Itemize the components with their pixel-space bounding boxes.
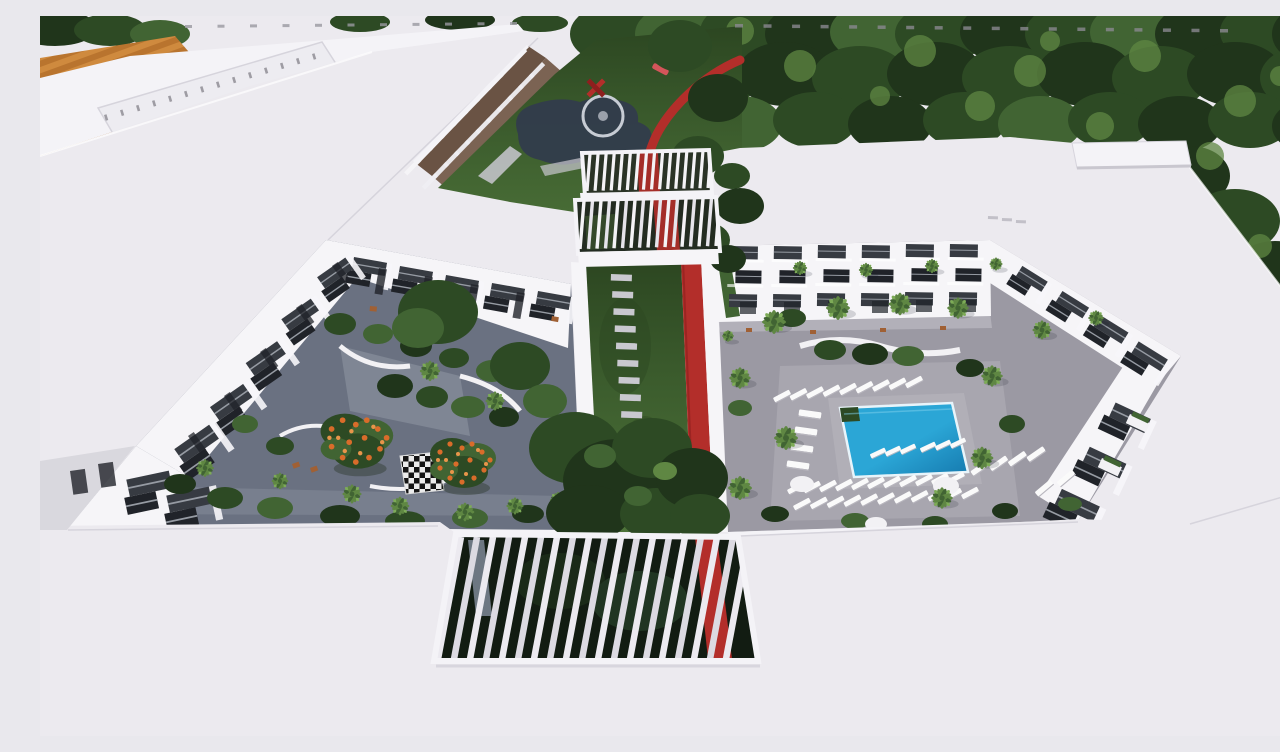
bush bbox=[439, 348, 469, 368]
tick bbox=[792, 25, 800, 29]
tree-blob bbox=[716, 188, 764, 224]
stepping-stone bbox=[616, 343, 637, 350]
palm-tree bbox=[762, 310, 786, 334]
palm-tree bbox=[1032, 320, 1051, 339]
tick bbox=[413, 23, 420, 26]
tree-highlight bbox=[870, 86, 890, 106]
tree-blob bbox=[584, 444, 616, 468]
tick bbox=[1163, 28, 1171, 32]
bush bbox=[207, 487, 243, 509]
shrub bbox=[1058, 497, 1082, 511]
playground-ring-center bbox=[598, 111, 608, 121]
tree-highlight bbox=[904, 35, 936, 67]
tick bbox=[1134, 28, 1142, 32]
tree-blob bbox=[624, 486, 652, 506]
tree-blob bbox=[670, 494, 730, 538]
rooftop-structure bbox=[1072, 141, 1191, 168]
tree-highlight bbox=[1224, 85, 1256, 117]
door bbox=[916, 300, 932, 312]
bush bbox=[266, 437, 294, 455]
palm-tree bbox=[859, 263, 873, 277]
shrub bbox=[728, 400, 752, 416]
stepping-stone bbox=[618, 377, 639, 384]
tick bbox=[1191, 29, 1199, 33]
chair bbox=[746, 328, 752, 332]
roof-mark bbox=[1002, 218, 1012, 221]
tree-highlight bbox=[965, 91, 995, 121]
tree-blob bbox=[490, 342, 550, 390]
palm-tree bbox=[826, 296, 850, 320]
tree-blob bbox=[392, 308, 444, 348]
chair bbox=[880, 328, 886, 332]
pool-corner-planter bbox=[840, 407, 860, 422]
palm-tree bbox=[272, 473, 289, 490]
palm-tree bbox=[420, 361, 440, 381]
chair bbox=[370, 306, 377, 312]
stepping-stone bbox=[617, 360, 638, 367]
tick bbox=[1077, 28, 1085, 32]
stepping-stone bbox=[613, 308, 634, 315]
tick bbox=[1020, 27, 1028, 31]
tick bbox=[764, 24, 772, 28]
tick bbox=[1049, 27, 1057, 31]
door bbox=[740, 302, 756, 314]
roof-mark bbox=[988, 216, 998, 219]
tick bbox=[510, 22, 517, 25]
bush bbox=[324, 313, 356, 335]
roof-mark bbox=[1016, 220, 1026, 223]
tick bbox=[478, 22, 485, 25]
bush bbox=[489, 407, 519, 427]
palm-tree bbox=[342, 484, 361, 503]
tree-highlight bbox=[1040, 31, 1060, 51]
rooftop-structure-shadow bbox=[1077, 166, 1191, 168]
palm-tree bbox=[947, 297, 969, 319]
tick bbox=[735, 24, 743, 28]
palm-tree bbox=[1088, 310, 1104, 326]
tick bbox=[1220, 29, 1228, 33]
palm-tree bbox=[774, 426, 798, 450]
tree-blob bbox=[523, 384, 567, 418]
red-path-under-pergola bbox=[637, 153, 660, 193]
tick bbox=[906, 26, 914, 30]
tick bbox=[992, 27, 1000, 31]
tree-blob bbox=[648, 20, 712, 72]
tree-blob bbox=[688, 74, 748, 122]
palm-tree bbox=[722, 330, 734, 342]
palm-tree bbox=[506, 497, 523, 514]
tick bbox=[1106, 28, 1114, 32]
bush bbox=[363, 324, 393, 344]
tick bbox=[821, 25, 829, 29]
stepping-stone bbox=[615, 325, 636, 332]
upper-pergola bbox=[575, 150, 720, 267]
palm-tree bbox=[485, 391, 504, 410]
shrub bbox=[852, 343, 888, 365]
tick bbox=[445, 23, 452, 26]
stepping-stone bbox=[621, 411, 642, 418]
tree-highlight bbox=[1014, 55, 1046, 87]
palm-tree bbox=[793, 261, 807, 275]
shrub bbox=[956, 359, 984, 377]
bush bbox=[257, 497, 293, 519]
tree-highlight bbox=[784, 50, 816, 82]
palm-tree bbox=[196, 459, 214, 477]
tick bbox=[380, 23, 387, 26]
shrub bbox=[814, 340, 846, 360]
shrub bbox=[841, 513, 869, 529]
architectural-rendering: Aerial 3D architectural rendering of a w… bbox=[40, 16, 1280, 736]
stepping-stone bbox=[620, 394, 641, 401]
bush bbox=[377, 374, 413, 398]
tick bbox=[218, 25, 225, 28]
tick bbox=[315, 24, 322, 27]
palm-tree bbox=[889, 293, 912, 316]
palm-tree bbox=[989, 257, 1002, 270]
tree-highlight bbox=[1196, 142, 1224, 170]
shrub bbox=[992, 503, 1018, 519]
tick bbox=[849, 25, 857, 29]
stepping-stone bbox=[611, 274, 632, 281]
tick bbox=[185, 25, 192, 28]
palm-tree bbox=[729, 367, 751, 389]
palm-tree bbox=[931, 487, 953, 509]
tick bbox=[935, 26, 943, 30]
bush bbox=[416, 386, 448, 408]
bush bbox=[451, 396, 485, 418]
round-planter bbox=[790, 476, 814, 492]
tick bbox=[283, 24, 290, 27]
tick bbox=[963, 26, 971, 30]
bush bbox=[164, 474, 196, 494]
tree-highlight bbox=[1086, 112, 1114, 140]
scene-canvas bbox=[40, 16, 1280, 736]
palm-tree bbox=[925, 259, 939, 273]
palm-tree bbox=[456, 503, 475, 522]
palm-tree bbox=[728, 476, 752, 500]
tick bbox=[250, 24, 257, 27]
palm-tree bbox=[971, 447, 994, 470]
tick bbox=[348, 24, 355, 27]
tree-highlight bbox=[1129, 40, 1161, 72]
chair bbox=[810, 330, 816, 334]
door bbox=[872, 301, 888, 313]
tree-blob bbox=[773, 92, 857, 148]
shrub bbox=[999, 415, 1025, 433]
shrub bbox=[892, 346, 924, 366]
chair bbox=[940, 326, 946, 330]
bush bbox=[232, 415, 258, 433]
tree-blob bbox=[653, 462, 677, 480]
palm-tree bbox=[981, 365, 1003, 387]
lower-pergola bbox=[434, 534, 760, 666]
stepping-stone bbox=[612, 291, 633, 298]
palm-tree bbox=[391, 497, 410, 516]
shrub bbox=[761, 506, 789, 522]
pergola-base-beam bbox=[578, 249, 719, 267]
tick bbox=[878, 25, 886, 29]
